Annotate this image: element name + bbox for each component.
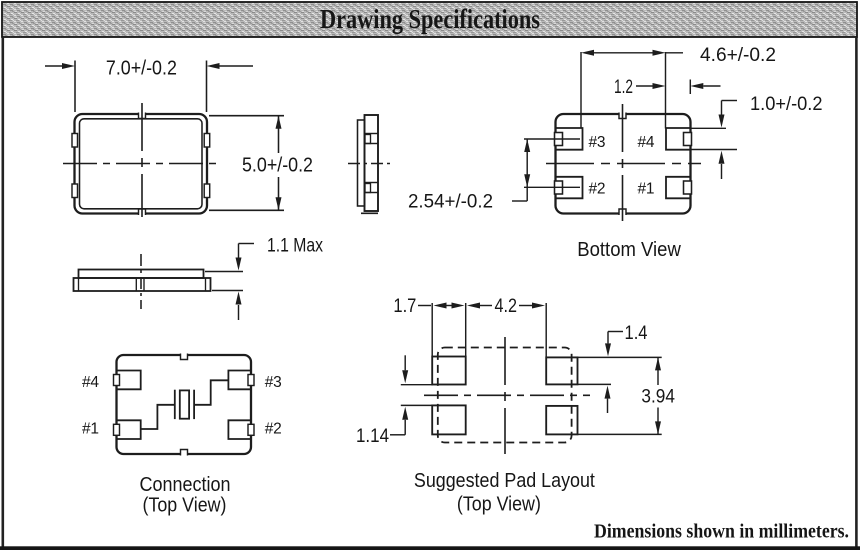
svg-text:5.0+/-0.2: 5.0+/-0.2 (242, 155, 313, 177)
svg-text:1.0+/-0.2: 1.0+/-0.2 (750, 94, 823, 115)
svg-text:#4: #4 (82, 374, 99, 391)
svg-text:#3: #3 (265, 374, 282, 391)
svg-text:1.4: 1.4 (625, 323, 648, 344)
svg-text:#1: #1 (82, 421, 99, 438)
svg-text:Drawing Specifications: Drawing Specifications (320, 4, 540, 34)
svg-text:#1: #1 (638, 181, 655, 198)
svg-text:4.6+/-0.2: 4.6+/-0.2 (700, 45, 776, 66)
svg-text:#4: #4 (638, 134, 655, 151)
svg-text:Suggested Pad Layout: Suggested Pad Layout (414, 469, 595, 492)
svg-text:Dimensions shown in millimeter: Dimensions shown in millimeters. (594, 521, 849, 543)
svg-text:(Top View): (Top View) (457, 493, 541, 516)
svg-text:#2: #2 (265, 421, 282, 438)
svg-text:4.2: 4.2 (495, 296, 518, 317)
svg-text:1.7: 1.7 (393, 296, 416, 317)
svg-text:1.1 Max: 1.1 Max (267, 236, 323, 257)
svg-text:7.0+/-0.2: 7.0+/-0.2 (106, 58, 177, 80)
svg-text:(Top View): (Top View) (143, 494, 227, 517)
svg-text:3.94: 3.94 (641, 387, 675, 408)
svg-text:1.14: 1.14 (356, 426, 389, 447)
svg-text:#2: #2 (589, 181, 606, 198)
svg-text:2.54+/-0.2: 2.54+/-0.2 (408, 192, 493, 213)
svg-text:#3: #3 (589, 134, 606, 151)
svg-text:Bottom View: Bottom View (577, 238, 681, 261)
svg-text:1.2: 1.2 (614, 77, 633, 98)
